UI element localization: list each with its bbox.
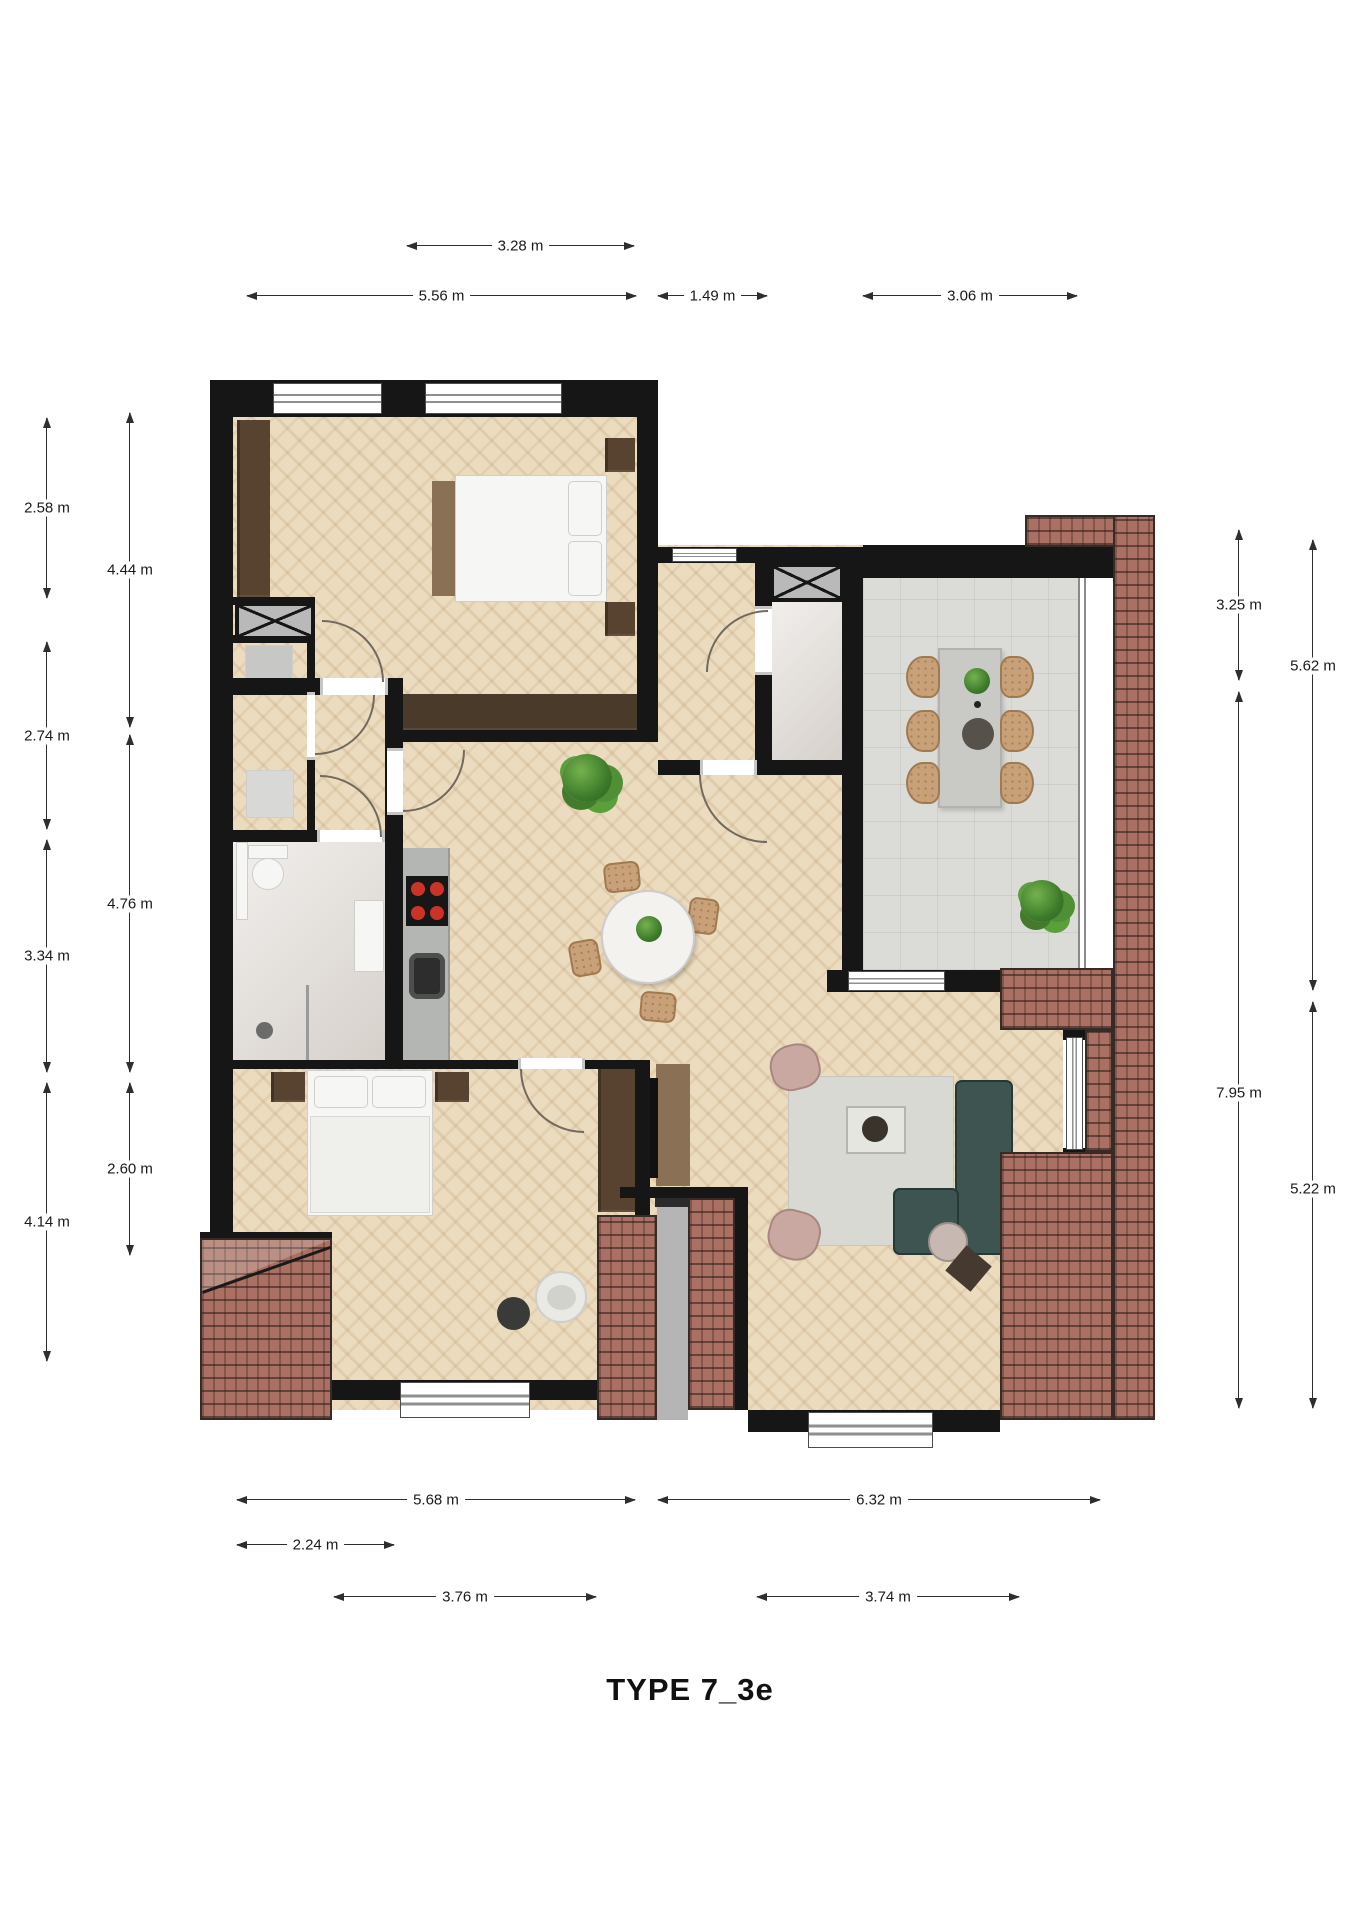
bed2-pillow-right bbox=[372, 1076, 426, 1108]
sink-ensuite bbox=[354, 900, 384, 972]
shower-glass-divider bbox=[306, 985, 309, 1060]
window-bedroom1-left bbox=[273, 383, 382, 414]
dim-top-3: 1.49 m bbox=[658, 295, 767, 296]
front-door bbox=[655, 1198, 690, 1207]
dog-bed-cushion bbox=[547, 1285, 576, 1310]
wall-hall-bottom-stub bbox=[658, 760, 700, 775]
dim-top-1: 3.28 m bbox=[407, 245, 634, 246]
balcony-chair bbox=[906, 710, 940, 752]
wall-bedroom2-top bbox=[233, 1060, 650, 1069]
dresser-bedroom1 bbox=[403, 694, 637, 730]
brick-roof-entrance-right bbox=[688, 1198, 735, 1410]
food-bowl bbox=[497, 1297, 530, 1330]
dim-left-outer-4: 4.14 m bbox=[46, 1083, 47, 1361]
balcony-chair bbox=[1000, 710, 1034, 752]
dim-bottom-3: 2.24 m bbox=[237, 1544, 394, 1545]
burner-icon bbox=[430, 882, 444, 896]
burner-icon bbox=[411, 906, 425, 920]
balcony-glass-facade bbox=[1078, 578, 1086, 970]
tv-cabinet bbox=[656, 1064, 690, 1186]
floorplan-canvas: 3.28 m 5.56 m 1.49 m 3.06 m 2.58 m 2.74 … bbox=[0, 0, 1358, 1920]
window-balcony-slider bbox=[848, 971, 945, 991]
plan-title: TYPE 7_3e bbox=[606, 1672, 774, 1708]
wall-balcony-left bbox=[842, 563, 863, 992]
brick-roof-bottom-right bbox=[1000, 1152, 1113, 1420]
mask-outside-topright bbox=[658, 270, 1188, 545]
dim-left-inner-1: 4.44 m bbox=[129, 413, 130, 727]
bed1-bench bbox=[432, 481, 455, 596]
window-hall bbox=[672, 548, 737, 562]
balcony-plant-large bbox=[1020, 880, 1064, 922]
potted-plant-dining bbox=[562, 754, 612, 802]
wall-toiletroom-bottom bbox=[758, 760, 863, 775]
coffee-table-tray bbox=[862, 1116, 888, 1142]
nightstand-bedroom1-bottom bbox=[605, 602, 635, 636]
wall-bedroom1-right bbox=[637, 380, 658, 730]
dining-chair-north bbox=[603, 860, 642, 894]
balcony-chair bbox=[906, 762, 940, 804]
brick-roof-right-strip bbox=[1113, 515, 1155, 1420]
dim-right-outer-2: 5.22 m bbox=[1312, 1002, 1313, 1408]
dim-bottom-2: 6.32 m bbox=[658, 1499, 1100, 1500]
table-plant bbox=[636, 916, 662, 942]
balcony-chair bbox=[906, 656, 940, 698]
nightstand-bedroom1-top bbox=[605, 438, 635, 472]
dim-right-inner-1: 3.25 m bbox=[1238, 530, 1239, 680]
entrance-porch bbox=[657, 1198, 688, 1420]
burner-icon bbox=[430, 906, 444, 920]
toilet-ensuite-tank bbox=[248, 845, 288, 859]
door-gap-hall-living bbox=[700, 760, 757, 775]
balcony-table-plant bbox=[964, 668, 990, 694]
floor-toilet-room bbox=[772, 600, 842, 760]
washing-machine-2 bbox=[246, 770, 294, 818]
tv-screen bbox=[650, 1078, 658, 1178]
installation-shaft-right bbox=[770, 563, 844, 602]
door-gap-vestibule bbox=[387, 748, 403, 815]
dim-left-inner-2: 4.76 m bbox=[129, 735, 130, 1072]
brick-roof-mid-right bbox=[1000, 968, 1113, 1030]
dim-left-inner-3: 2.60 m bbox=[129, 1083, 130, 1255]
wall-exterior-left bbox=[210, 380, 233, 1250]
wall-bedroom1-bottom-right bbox=[403, 730, 658, 742]
wall-entrance-right bbox=[735, 1198, 748, 1410]
dim-left-outer-3: 3.34 m bbox=[46, 840, 47, 1072]
brick-roof-beside-window bbox=[1085, 1030, 1113, 1152]
wall-above-entrance bbox=[620, 1187, 748, 1198]
dim-right-inner-2: 7.95 m bbox=[1238, 692, 1239, 1408]
table-dot bbox=[974, 701, 981, 708]
door-gap-laundry bbox=[307, 692, 315, 760]
dining-chair-west bbox=[567, 938, 603, 979]
brick-roof-entrance-left bbox=[597, 1215, 657, 1420]
dim-bottom-4: 3.76 m bbox=[334, 1596, 596, 1597]
dim-left-outer-1: 2.58 m bbox=[46, 418, 47, 598]
dim-left-outer-2: 2.74 m bbox=[46, 642, 47, 829]
bed1-pillow-bottom bbox=[568, 541, 602, 596]
dim-right-outer-1: 5.62 m bbox=[1312, 540, 1313, 990]
wall-vestibule-right bbox=[385, 680, 403, 1060]
nightstand-bedroom2-right bbox=[435, 1072, 469, 1102]
nightstand-bedroom2-left bbox=[271, 1072, 305, 1102]
balcony-table-bowl bbox=[962, 718, 994, 750]
toilet-ensuite-bowl bbox=[252, 858, 284, 890]
window-bedroom1-right bbox=[425, 383, 562, 414]
dim-top-2: 5.56 m bbox=[247, 295, 636, 296]
bed2-blanket bbox=[310, 1116, 430, 1213]
dim-bottom-1: 5.68 m bbox=[237, 1499, 635, 1500]
door-gap-bedroom2 bbox=[518, 1058, 585, 1069]
bed2-pillow-left bbox=[314, 1076, 368, 1108]
bed1-pillow-top bbox=[568, 481, 602, 536]
window-living-right bbox=[1066, 1037, 1083, 1150]
kitchen-sink bbox=[409, 953, 445, 999]
balcony-chair bbox=[1000, 656, 1034, 698]
dining-chair-south bbox=[639, 990, 677, 1023]
window-bedroom2 bbox=[400, 1382, 530, 1418]
dim-bottom-5: 3.74 m bbox=[757, 1596, 1019, 1597]
balcony-gutter bbox=[1086, 578, 1113, 992]
shower-head bbox=[256, 1022, 273, 1039]
burner-icon bbox=[411, 882, 425, 896]
wall-balcony-top bbox=[863, 545, 1113, 578]
dim-top-4: 3.06 m bbox=[863, 295, 1077, 296]
installation-shaft-left bbox=[235, 602, 315, 640]
door-leaf-ensuite bbox=[236, 842, 248, 920]
wardrobe-bedroom1 bbox=[237, 420, 270, 597]
balcony-chair bbox=[1000, 762, 1034, 804]
window-living-bottom bbox=[808, 1412, 933, 1448]
